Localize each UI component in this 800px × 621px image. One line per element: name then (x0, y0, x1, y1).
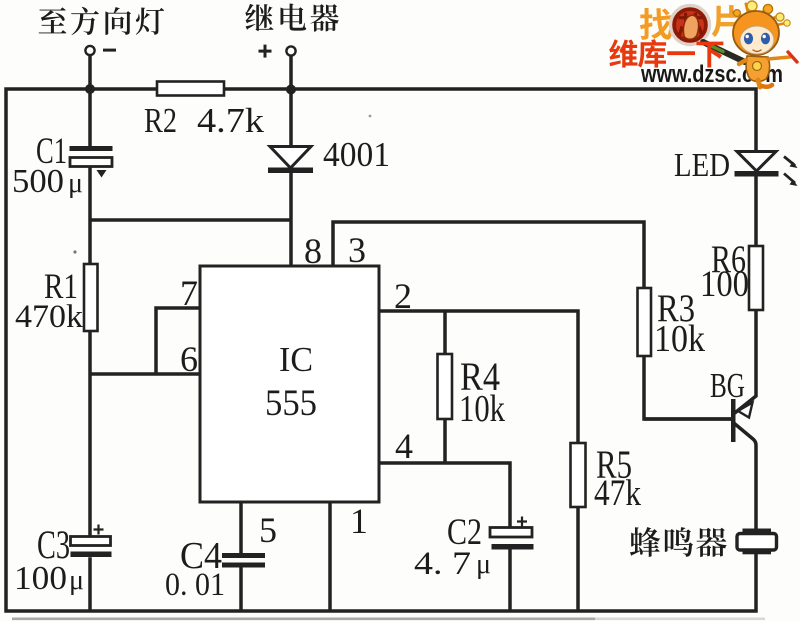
svg-text:6: 6 (180, 339, 198, 379)
svg-text:4.7k: 4.7k (197, 101, 265, 140)
svg-text:10k: 10k (459, 388, 505, 430)
svg-text:8: 8 (304, 231, 322, 271)
svg-text:1: 1 (350, 501, 368, 541)
svg-text:2: 2 (394, 276, 412, 316)
svg-text:100: 100 (700, 264, 749, 305)
svg-text:470k: 470k (15, 299, 84, 335)
svg-text:555: 555 (265, 383, 317, 424)
svg-text:R2: R2 (144, 101, 177, 140)
svg-text:4: 4 (395, 426, 413, 466)
svg-text:μ: μ (68, 168, 83, 199)
svg-text:500: 500 (12, 163, 64, 200)
svg-text:10k: 10k (654, 318, 705, 360)
svg-text:BG: BG (710, 366, 745, 405)
svg-text:3: 3 (348, 230, 366, 270)
svg-text:LED: LED (674, 147, 730, 184)
svg-text:μ: μ (476, 549, 491, 580)
svg-text:0. 01: 0. 01 (165, 567, 225, 603)
svg-text:IC: IC (279, 340, 313, 379)
svg-text:5: 5 (259, 510, 277, 550)
svg-text:100: 100 (14, 560, 67, 597)
svg-text:μ: μ (69, 565, 84, 596)
svg-text:47k: 47k (594, 473, 641, 514)
svg-text:7: 7 (180, 273, 198, 313)
svg-text:4001: 4001 (323, 135, 390, 174)
svg-text:4. 7: 4. 7 (414, 546, 471, 582)
